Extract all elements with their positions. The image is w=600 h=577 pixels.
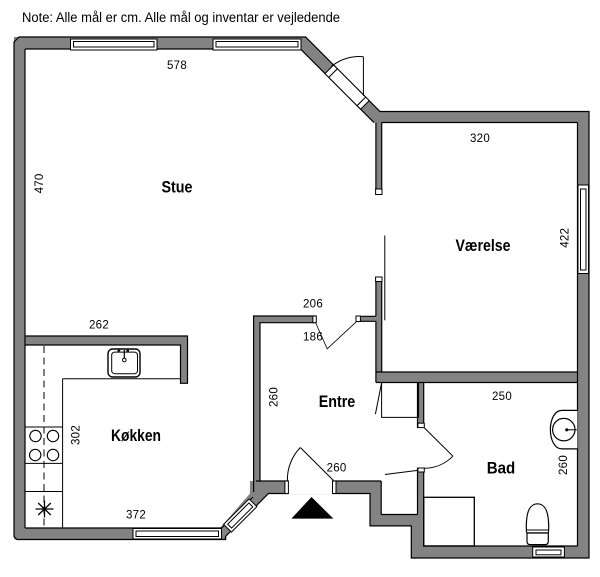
svg-text:470: 470 — [34, 173, 46, 193]
svg-text:186: 186 — [303, 332, 323, 344]
svg-text:Stue: Stue — [162, 177, 193, 196]
svg-text:Bad: Bad — [487, 458, 516, 477]
svg-text:250: 250 — [492, 391, 512, 403]
svg-text:302: 302 — [71, 425, 83, 445]
svg-text:262: 262 — [89, 320, 109, 332]
svg-text:206: 206 — [303, 299, 323, 311]
svg-text:422: 422 — [560, 228, 572, 248]
svg-text:260: 260 — [558, 455, 570, 475]
svg-text:Køkken: Køkken — [111, 426, 161, 445]
svg-text:578: 578 — [167, 60, 187, 72]
svg-text:260: 260 — [269, 387, 281, 407]
svg-text:Entre: Entre — [319, 392, 356, 411]
svg-text:260: 260 — [327, 463, 347, 475]
svg-text:372: 372 — [126, 510, 146, 522]
svg-text:Værelse: Værelse — [456, 236, 511, 255]
svg-text:320: 320 — [470, 133, 490, 145]
svg-text:Note: Alle mål er cm. Alle mål: Note: Alle mål er cm. Alle mål og invent… — [22, 10, 340, 25]
